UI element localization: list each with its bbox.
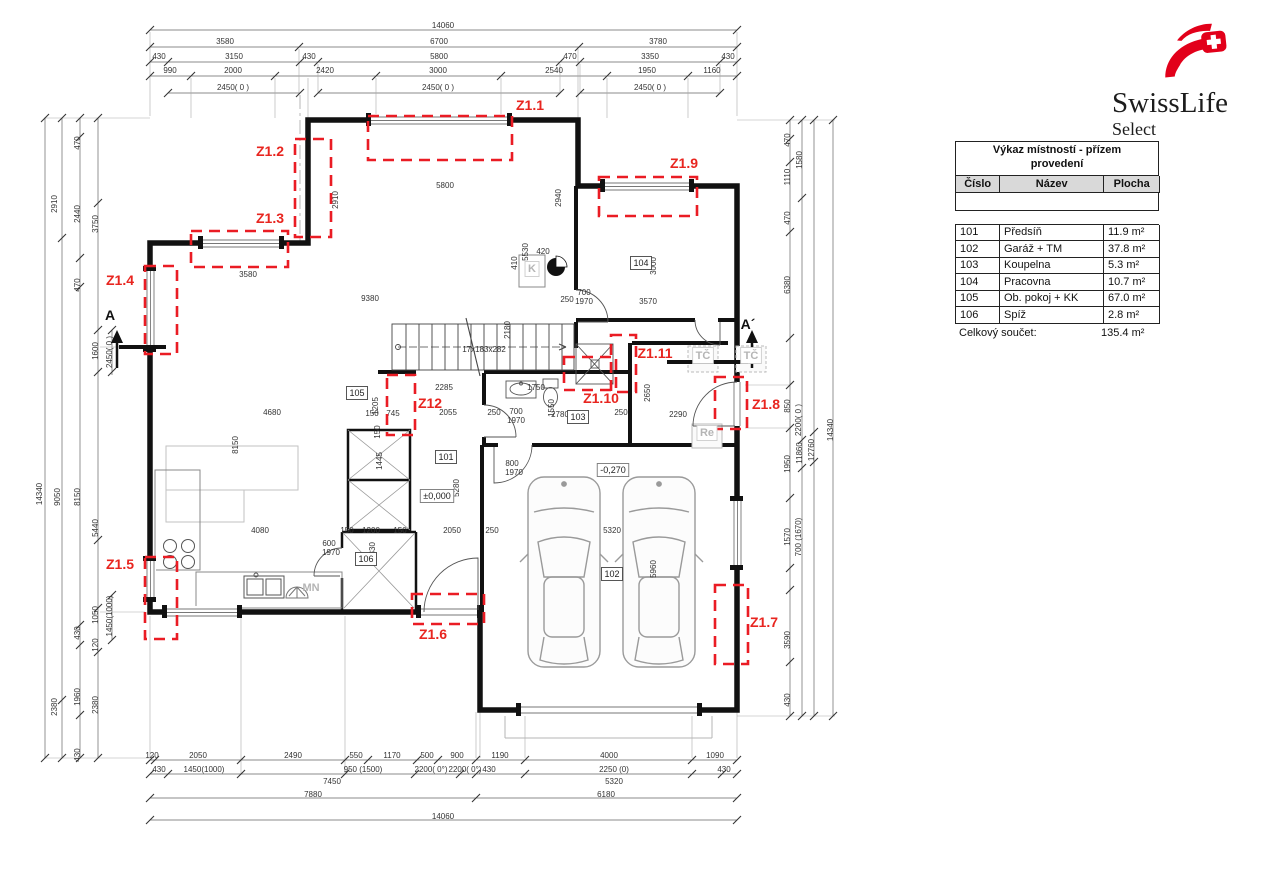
dim-label: 2285 [435, 383, 453, 392]
dim-label: 2420 [316, 66, 334, 75]
table-row: 106Spíž2.8 m² [955, 307, 1159, 324]
dim-label: 1750 [527, 383, 545, 392]
room-number: 103 [570, 412, 585, 422]
side-door-z1-8 [731, 382, 743, 426]
dim-label: 6180 [597, 790, 615, 799]
dim-label: 430 [73, 626, 82, 640]
garage-door [516, 703, 702, 716]
dim-label: 120 [91, 638, 100, 652]
equipment-label: TČ [744, 349, 759, 362]
table-empty-row [955, 193, 1159, 211]
dim-label: 1170 [383, 751, 401, 760]
dim-label: 2050 [443, 526, 461, 535]
zone-label: Z1.11 [637, 345, 672, 361]
garage-apron [505, 716, 712, 738]
dim-label: 500 [420, 751, 434, 760]
dim-label: 2450( 0 ) [422, 83, 454, 92]
dim-label: 2910 [50, 195, 59, 213]
table-cell: 10.7 m² [1103, 274, 1160, 291]
table-cell: 11.9 m² [1103, 225, 1160, 242]
dim-label: 470 [73, 278, 82, 292]
table-cell: 106 [955, 307, 1000, 324]
dim-label: 2450( 0 ) [634, 83, 666, 92]
dim-label: 5320 [603, 526, 621, 535]
dim-label: 430 [717, 765, 731, 774]
dim-label: 700 [509, 407, 523, 416]
dim-label: 2780 [551, 410, 569, 419]
dim-label: 950 (1500) [344, 765, 383, 774]
brand-name: SwissLife [1112, 89, 1252, 118]
dim-label: 1960 [73, 688, 82, 706]
level-mark: -0,270 [600, 465, 626, 475]
dim-label: 14060 [432, 21, 455, 30]
dim-label: 850 [783, 399, 792, 413]
dim-label: 14060 [432, 812, 455, 821]
dim-label: 430 [73, 748, 82, 762]
dim-label: 1445 [375, 452, 384, 470]
table-cell: Spíž [999, 307, 1104, 324]
equipment-label: TČ [696, 349, 711, 362]
room-number: 101 [438, 452, 453, 462]
dim-label: 11860 [795, 442, 804, 464]
dim-label: 3580 [216, 37, 234, 46]
dim-label: 410 [510, 256, 519, 270]
floor-plan-page: 1406035806700378043031504305800470335043… [0, 0, 1280, 890]
dim-label: 430 [783, 693, 792, 707]
total-label: Celkový součet: [959, 327, 1037, 339]
column-header: Plocha [1103, 176, 1160, 193]
dim-label: 1450(1000) [184, 765, 225, 774]
dim-label: 12760 [807, 438, 816, 461]
zone-label: Z1.3 [256, 210, 284, 226]
dim-label: 700 [577, 288, 591, 297]
dim-label: 8150 [73, 488, 82, 506]
dim-label: 2000 [224, 66, 242, 75]
table-cell: 5.3 m² [1103, 258, 1160, 275]
dim-label: 150 [365, 409, 379, 418]
table-row: 102Garáž + TM37.8 m² [955, 241, 1159, 258]
dim-label: 2380 [91, 696, 100, 714]
dim-label: 470 [73, 136, 82, 150]
dim-label: 430 [152, 52, 166, 61]
zone-label: Z1.9 [670, 155, 698, 171]
dim-label: 150 [340, 526, 354, 535]
table-title: Výkaz místností - přízem provedení [955, 141, 1159, 176]
dim-label: 2380 [50, 698, 59, 716]
zone-label: Z1.8 [752, 396, 780, 412]
total-value: 135.4 m² [1101, 327, 1157, 339]
dim-label: 2650 [643, 384, 652, 402]
car [520, 477, 608, 667]
dim-label: 150 [393, 526, 407, 535]
column-header: Název [999, 176, 1104, 193]
dim-label: 1580 [795, 151, 804, 169]
room-number: 105 [349, 388, 364, 398]
dim-label: 8150 [231, 436, 240, 454]
dim-label: 2250 (0) [599, 765, 629, 774]
dim-label: 430 [302, 52, 316, 61]
table-total-row: Celkový součet: 135.4 m² [955, 324, 1159, 339]
dim-label: 1160 [703, 66, 721, 75]
floor-plan-drawing: 1406035806700378043031504305800470335043… [0, 0, 1280, 890]
dim-label: 14340 [35, 482, 44, 505]
dim-label: 6700 [430, 37, 448, 46]
room-number: 106 [358, 554, 373, 564]
dim-label: 1600 [91, 342, 100, 360]
dim-label: 990 [163, 66, 177, 75]
window-z1-9 [600, 179, 694, 192]
window-z1-3 [198, 236, 284, 249]
dim-label: 430 [482, 765, 496, 774]
dim-label: 14340 [826, 418, 835, 441]
zone-label: Z1.2 [256, 143, 284, 159]
table-row: 103Koupelna5.3 m² [955, 258, 1159, 275]
dim-label: 250 [487, 408, 501, 417]
table-cell: 2.8 m² [1103, 307, 1160, 324]
dim-label: 2180 [503, 321, 512, 339]
dim-label: 2450( 0 ) [217, 83, 249, 92]
window-bottom [162, 605, 242, 618]
table-cell: Garáž + TM [999, 241, 1104, 258]
table-header-row: ČísloNázevPlocha [955, 176, 1159, 193]
dim-label: 1200 [362, 526, 380, 535]
dim-label: 7880 [304, 790, 322, 799]
dim-label: 430 [721, 52, 735, 61]
dim-label: 600 [322, 539, 336, 548]
table-row: 104Pracovna10.7 m² [955, 274, 1159, 291]
swisslife-logo: SwissLife Select [1112, 20, 1252, 140]
zone-label: Z1.4 [106, 272, 134, 288]
dim-label: 550 [349, 751, 363, 760]
dim-label: 700 (1670) [794, 517, 803, 556]
dim-label: 9380 [361, 294, 379, 303]
equipment-label: Re [700, 427, 714, 439]
dim-label: 745 [386, 409, 400, 418]
zone-label: Z1.7 [750, 614, 778, 630]
section-label: A [105, 307, 115, 323]
dim-label: 3590 [783, 631, 792, 649]
dim-label: 5320 [605, 777, 623, 786]
table-cell: 103 [955, 258, 1000, 275]
dim-label: 1950 [783, 455, 792, 473]
dim-label: 150 [373, 425, 382, 439]
brand-subname: Select [1112, 119, 1252, 140]
dim-label: 1090 [706, 751, 724, 760]
dim-label: 250 [485, 526, 499, 535]
room-number: 104 [633, 258, 648, 268]
level-mark: ±0,000 [423, 491, 450, 501]
dim-label: 430 [152, 765, 166, 774]
zone-label: Z1.5 [106, 556, 134, 572]
table-cell: 67.0 m² [1103, 291, 1160, 308]
table-cell: Ob. pokoj + KK [999, 291, 1104, 308]
table-cell: Předsíň [999, 225, 1104, 242]
dim-label: 2440 [73, 205, 82, 223]
equipment-label: K [528, 263, 536, 275]
dim-label: 3750 [91, 215, 100, 233]
zone-label: Z1.10 [583, 390, 619, 406]
zone-label: Z1.1 [516, 97, 544, 113]
dim-label: 2490 [284, 751, 302, 760]
dim-label: 2200( 0°) [415, 765, 448, 774]
dim-label: 1570 [783, 528, 792, 546]
dim-label: 6380 [783, 276, 792, 294]
dim-label: 2910 [331, 191, 340, 209]
dim-label: 4680 [263, 408, 281, 417]
dim-label: 1970 [507, 416, 525, 425]
table-cell: 101 [955, 225, 1000, 242]
dim-label: 900 [450, 751, 464, 760]
dim-label: 5440 [91, 519, 100, 537]
dim-label: 2050 [189, 751, 207, 760]
dim-label: 800 [505, 459, 519, 468]
swisslife-swoosh-icon [1154, 20, 1232, 82]
dim-label: 1110 [783, 168, 792, 185]
dim-label: 9050 [53, 488, 62, 506]
table-body: 101Předsíň11.9 m²102Garáž + TM37.8 m²103… [955, 224, 1159, 324]
table-row: 105Ob. pokoj + KK67.0 m² [955, 291, 1159, 308]
dim-label: 1970 [322, 548, 340, 557]
column-header: Číslo [955, 176, 1000, 193]
dim-label: 2540 [545, 66, 563, 75]
dim-label: 4000 [600, 751, 618, 760]
dim-label: 250 [560, 295, 574, 304]
dim-label: 17x183x282 [462, 345, 506, 354]
dim-label: 5960 [649, 560, 658, 578]
dim-label: 5800 [436, 181, 454, 190]
table-row: 101Předsíň11.9 m² [955, 225, 1159, 242]
entry-door-z1-6 [416, 605, 482, 618]
dim-label: 5800 [430, 52, 448, 61]
table-cell: 105 [955, 291, 1000, 308]
zone-label: Z12 [418, 395, 442, 411]
dim-label: 2200( 0 ) [794, 404, 803, 436]
window-right [730, 496, 743, 570]
equipment-label: MN [302, 582, 319, 594]
dim-label: 2200( 0°) [449, 765, 482, 774]
room-number: 102 [604, 569, 619, 579]
car [615, 477, 703, 667]
dim-label: 250 [614, 408, 628, 417]
dim-label: 420 [536, 247, 550, 256]
dim-label: 7450 [323, 777, 341, 786]
dim-label: 2290 [669, 410, 687, 419]
dim-label: 1950 [638, 66, 656, 75]
table-cell: 37.8 m² [1103, 241, 1160, 258]
dim-label: 1970 [505, 468, 523, 477]
dim-label: 3580 [239, 270, 257, 279]
room-schedule-table: Výkaz místností - přízem provedení Číslo… [955, 141, 1159, 339]
table-cell: 104 [955, 274, 1000, 291]
section-label: A´ [741, 316, 756, 332]
dim-label: 3570 [639, 297, 657, 306]
dim-label: 2940 [554, 189, 563, 207]
dim-label: 1190 [491, 751, 509, 760]
dim-label: 1450(1000) [105, 595, 114, 636]
table-cell: Pracovna [999, 274, 1104, 291]
table-cell: Koupelna [999, 258, 1104, 275]
table-cell: 102 [955, 241, 1000, 258]
dim-label: 1050 [91, 606, 100, 624]
dim-label: 4080 [251, 526, 269, 535]
dim-label: 5530 [521, 243, 530, 261]
dim-label: 470 [783, 133, 792, 147]
dim-label: 470 [783, 211, 792, 225]
dim-label: 470 [563, 52, 577, 61]
dim-label: 3350 [641, 52, 659, 61]
dim-label: 3000 [429, 66, 447, 75]
dim-label: 120 [145, 751, 159, 760]
zone-label: Z1.6 [419, 626, 447, 642]
dim-label: 3780 [649, 37, 667, 46]
dim-label: 1970 [575, 297, 593, 306]
dim-label: 3150 [225, 52, 243, 61]
